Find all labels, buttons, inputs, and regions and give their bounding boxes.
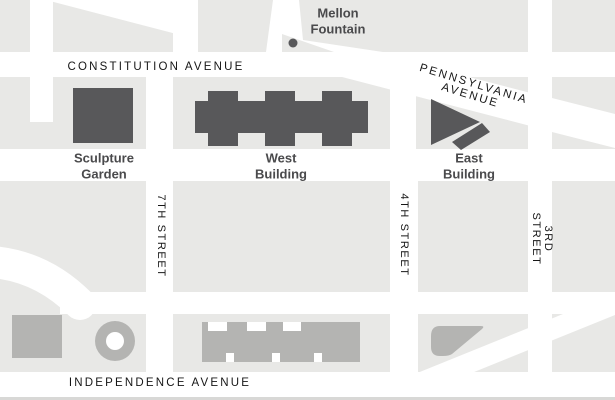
south-building-square — [12, 315, 62, 358]
seventh-street-road — [146, 77, 173, 372]
fourth-street-road — [390, 60, 416, 372]
third-street-road — [528, 0, 552, 372]
block — [0, 77, 30, 149]
block — [0, 0, 30, 52]
block — [198, 0, 273, 52]
map-canvas — [0, 0, 615, 400]
block — [552, 0, 615, 52]
block-mellon-fountain — [299, 0, 528, 52]
south-long-building — [202, 322, 360, 362]
block-mall — [418, 181, 528, 292]
mellon-fountain-dot — [289, 39, 298, 48]
sculpture-garden-shape — [73, 88, 133, 143]
west-building-shape — [195, 91, 368, 146]
block-mall — [173, 181, 390, 292]
madison-drive-road — [0, 149, 615, 181]
hirshhorn-ring-hole — [106, 332, 124, 350]
side-street-road — [30, 0, 53, 122]
block — [30, 122, 53, 149]
nga-area-map: CONSTITUTION AVENUE PENNSYLVANIA AVENUE … — [0, 0, 615, 400]
block-mall — [552, 181, 615, 292]
independence-avenue-road — [0, 372, 615, 397]
